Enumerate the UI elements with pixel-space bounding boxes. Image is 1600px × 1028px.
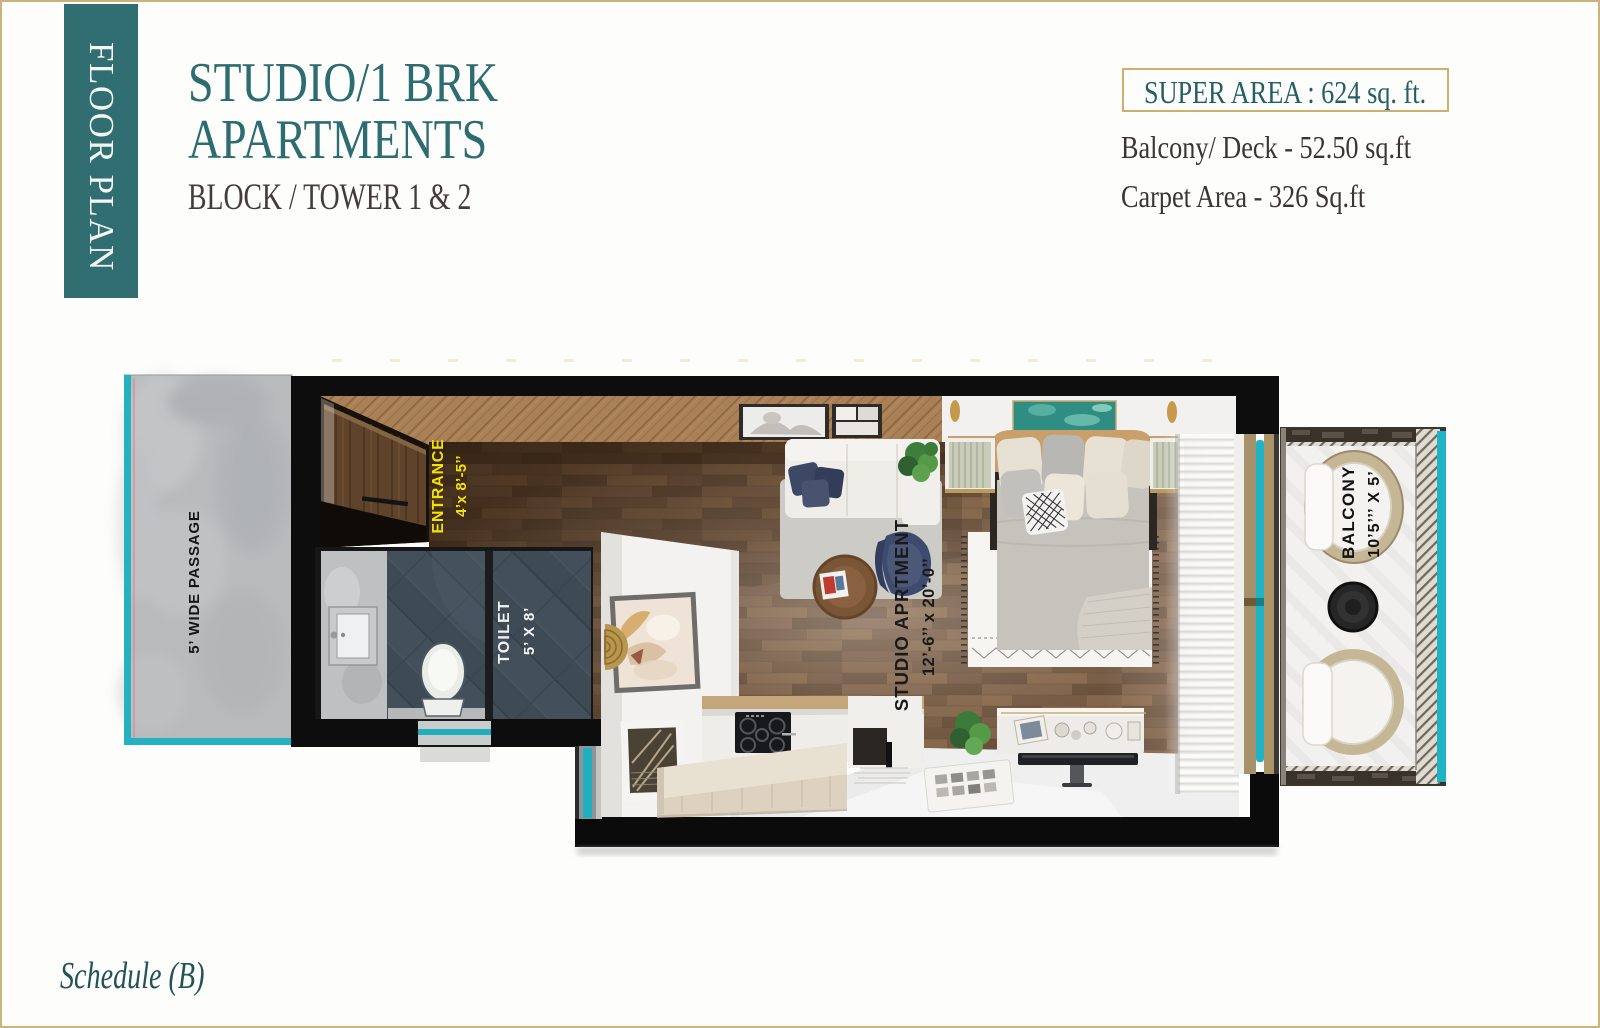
svg-text:5’ WIDE PASSAGE: 5’ WIDE PASSAGE [186,510,203,653]
svg-text:12’-6’’ x 20’-0’’: 12’-6’’ x 20’-0’’ [920,558,938,676]
svg-text:ENTRANCE: ENTRANCE [430,438,447,533]
svg-text:4’x 8’-5’’: 4’x 8’-5’’ [453,455,470,517]
svg-text:BALCONY: BALCONY [1339,465,1358,559]
svg-text:5’ X 8’: 5’ X 8’ [521,607,538,655]
svg-text:TOILET: TOILET [496,600,513,664]
svg-text:10’5’’’ X 5’: 10’5’’’ X 5’ [1366,470,1383,557]
svg-text:STUDIO APRTMENT: STUDIO APRTMENT [891,519,912,711]
